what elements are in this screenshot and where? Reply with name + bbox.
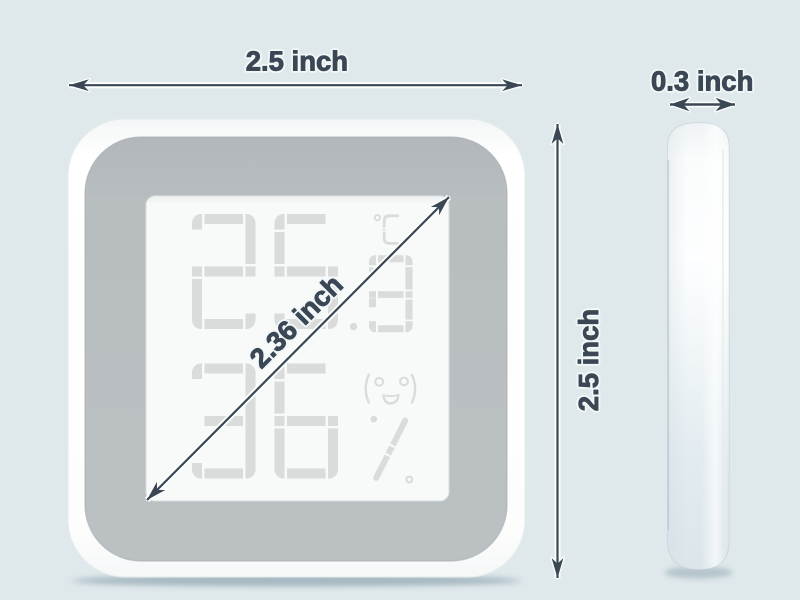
svg-text:2.5 inch: 2.5 inch	[246, 45, 348, 76]
svg-text:0.3 inch: 0.3 inch	[651, 65, 753, 96]
svg-text:2.5 inch: 2.5 inch	[573, 309, 604, 411]
